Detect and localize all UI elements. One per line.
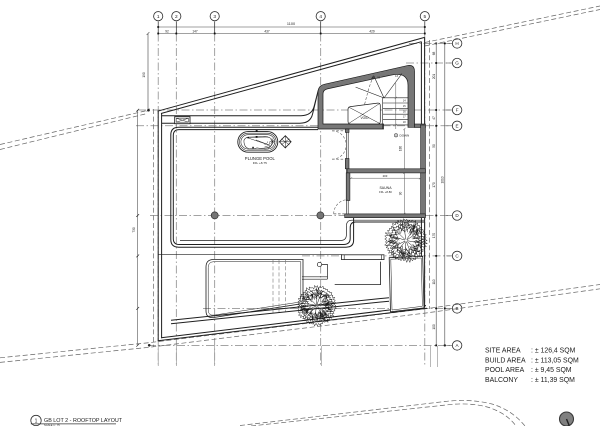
svg-text:3: 3	[213, 14, 216, 20]
svg-text:190: 190	[142, 72, 146, 78]
svg-text:5: 5	[423, 14, 426, 20]
svg-text:: ± 9,45 SQM: : ± 9,45 SQM	[531, 367, 572, 374]
svg-text:170: 170	[432, 233, 436, 239]
svg-text:47: 47	[432, 116, 436, 120]
svg-text:H: H	[455, 41, 458, 46]
svg-text:: ± 113,05 SQM: : ± 113,05 SQM	[531, 357, 579, 364]
svg-text:: ± 11,39 SQM: : ± 11,39 SQM	[531, 377, 575, 384]
svg-text:E: E	[456, 124, 459, 129]
svg-text:VOID: VOID	[360, 116, 369, 120]
svg-text:50: 50	[432, 144, 436, 148]
svg-text:SITE AREA: SITE AREA	[485, 348, 521, 355]
svg-text:1: 1	[157, 14, 160, 20]
svg-text:G: G	[455, 61, 459, 66]
svg-text:FFL +8.75: FFL +8.75	[253, 161, 267, 165]
svg-text:429: 429	[369, 29, 375, 33]
svg-text:180: 180	[399, 146, 403, 152]
svg-text:SAUNA: SAUNA	[379, 186, 392, 190]
svg-text:201: 201	[432, 74, 436, 80]
svg-text:1010: 1010	[441, 176, 445, 183]
svg-text:BUILD AREA: BUILD AREA	[485, 357, 526, 364]
svg-text:4: 4	[319, 14, 322, 20]
svg-text:2: 2	[175, 14, 178, 20]
svg-text:92: 92	[165, 29, 169, 33]
svg-text:68: 68	[432, 52, 436, 56]
svg-text:BALCONY: BALCONY	[485, 377, 518, 384]
svg-text:100: 100	[432, 324, 436, 330]
svg-text:170: 170	[432, 182, 436, 188]
svg-text:FFL +8.80: FFL +8.80	[379, 190, 392, 194]
svg-text:437: 437	[264, 29, 270, 33]
svg-text:147: 147	[192, 29, 198, 33]
svg-text:1100: 1100	[287, 22, 295, 26]
svg-text:203: 203	[383, 174, 388, 178]
svg-text:90: 90	[399, 192, 403, 196]
svg-text:POOL AREA: POOL AREA	[485, 367, 525, 374]
svg-text:F: F	[456, 108, 459, 113]
svg-text:: ± 126,4 SQM: : ± 126,4 SQM	[531, 348, 576, 355]
svg-text:110: 110	[432, 279, 436, 284]
svg-text:730: 730	[132, 227, 136, 233]
